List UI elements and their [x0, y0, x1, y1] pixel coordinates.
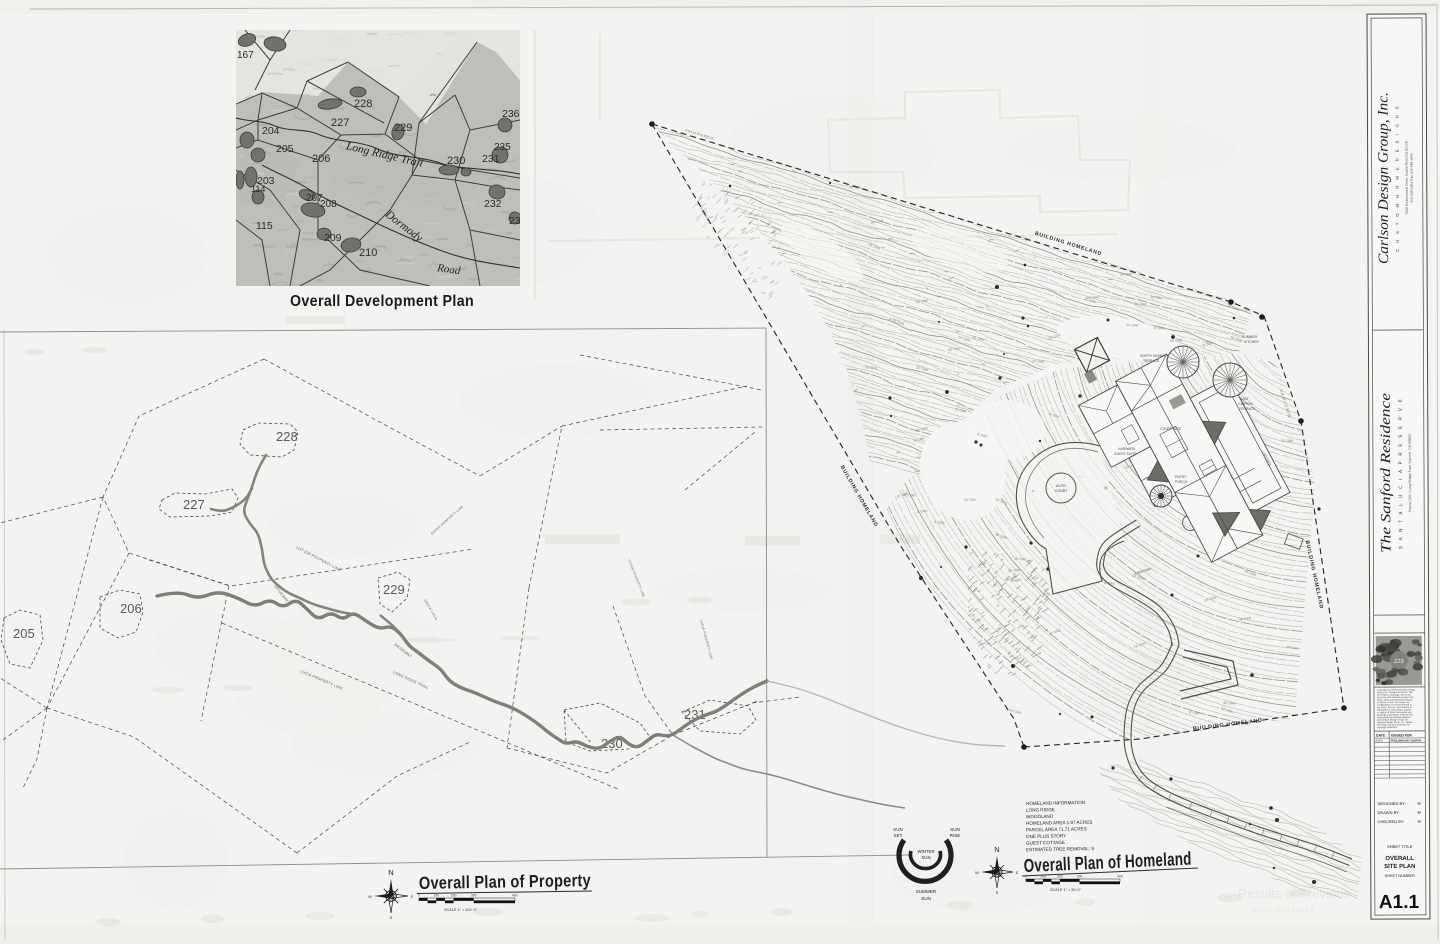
svg-text:228: 228: [276, 429, 298, 444]
svg-text:SUN: SUN: [921, 896, 931, 901]
svg-text:208: 208: [320, 199, 337, 210]
svg-text:303-448-1854 Fax 303-448-1840: 303-448-1854 Fax 303-448-1840: [1410, 153, 1414, 203]
svg-text:TERRACE: TERRACE: [1239, 407, 1256, 411]
svg-text:167: 167: [237, 50, 254, 61]
svg-text:229: 229: [1394, 659, 1405, 665]
svg-text:227: 227: [183, 497, 205, 512]
svg-text:205: 205: [276, 143, 294, 155]
svg-text:WINTER: WINTER: [917, 849, 934, 854]
svg-text:36' OAK: 36' OAK: [1223, 701, 1236, 706]
svg-text:206: 206: [120, 601, 142, 616]
svg-text:E: E: [1016, 870, 1019, 875]
svg-text:OVERALL: OVERALL: [1385, 856, 1414, 862]
svg-text:CANYON: CANYON: [1238, 402, 1253, 406]
svg-text:210: 210: [359, 247, 377, 259]
svg-text:Carlson Design Group, Inc.: Carlson Design Group, Inc.: [1375, 92, 1392, 264]
svg-text:236: 236: [502, 108, 520, 120]
svg-text:Parcel 229 / Long Ridge Trail,: Parcel 229 / Long Ridge Trail, Carmel, C…: [1408, 434, 1412, 512]
svg-text:SCALE 1" = 30'-0": SCALE 1" = 30'-0": [1050, 888, 1082, 892]
svg-text:RISE: RISE: [950, 833, 961, 838]
svg-text:E: E: [411, 894, 414, 899]
svg-text:The Sanford Residence: The Sanford Residence: [1379, 393, 1395, 553]
svg-text:7562 Hickorywood Drive, Castle: 7562 Hickorywood Drive, Castle Rock CO 8…: [1405, 141, 1409, 214]
svg-text:23: 23: [509, 215, 521, 227]
svg-text:Results of Previous: Results of Previous: [1238, 886, 1350, 901]
svg-text:S: S: [996, 890, 999, 895]
svg-text:200: 200: [1057, 875, 1063, 879]
svg-text:PRELIMINARY DESIGN: PRELIMINARY DESIGN: [1391, 738, 1422, 742]
svg-text:8' OAK: 8' OAK: [1154, 326, 1166, 331]
svg-text:100: 100: [1040, 875, 1046, 879]
svg-text:SITE PLAN: SITE PLAN: [1384, 864, 1415, 870]
svg-text:WOODLAND: WOODLAND: [1026, 814, 1054, 819]
svg-text:KITCHEN: KITCHEN: [1244, 340, 1259, 344]
svg-text:231: 231: [482, 153, 500, 165]
svg-text:114: 114: [251, 184, 265, 194]
svg-text:S: S: [390, 915, 393, 920]
svg-text:36' OAK: 36' OAK: [1170, 338, 1183, 343]
svg-text:SET: SET: [894, 833, 903, 838]
svg-text:24' OAK: 24' OAK: [964, 498, 977, 502]
svg-text:36' OAK: 36' OAK: [1134, 302, 1147, 306]
svg-text:A1.1: A1.1: [1379, 892, 1420, 913]
svg-text:COURT: COURT: [1055, 489, 1069, 493]
svg-text:229: 229: [394, 122, 412, 134]
svg-text:GUEST COTTAGE: GUEST COTTAGE: [1026, 840, 1065, 846]
svg-text:AUTO: AUTO: [1056, 484, 1066, 488]
svg-text:300: 300: [471, 894, 477, 898]
svg-text:SHEET NUMBER: SHEET NUMBER: [1385, 874, 1415, 878]
svg-text:LONG RIDGE: LONG RIDGE: [1026, 807, 1055, 813]
svg-text:230: 230: [447, 155, 465, 167]
svg-text:PORCH: PORCH: [1175, 480, 1188, 484]
svg-text:Overall Plan of Property: Overall Plan of Property: [419, 870, 591, 893]
svg-text:W: W: [368, 894, 372, 899]
svg-text:W: W: [975, 870, 979, 875]
svg-text:ENTRY: ENTRY: [1175, 475, 1187, 479]
svg-text:0: 0: [1025, 875, 1027, 879]
svg-text:205: 205: [13, 626, 35, 641]
svg-text:400: 400: [512, 894, 518, 898]
svg-text:209: 209: [324, 232, 342, 244]
svg-text:12' OAK: 12' OAK: [1281, 439, 1294, 443]
svg-text:200: 200: [451, 894, 457, 898]
svg-text:SHEET TITLE: SHEET TITLE: [1387, 844, 1413, 849]
svg-text:copyright protection.: copyright protection.: [1377, 726, 1398, 729]
svg-text:C U S T O M H O M E D E S I: C U S T O M H O M E D E S I G N S: [1394, 104, 1400, 252]
svg-text:M: M: [1417, 810, 1420, 815]
svg-text:NORTH DINING: NORTH DINING: [1140, 354, 1165, 358]
svg-text:N: N: [994, 845, 999, 854]
svg-text:206: 206: [312, 153, 330, 165]
svg-text:204: 204: [262, 125, 280, 137]
svg-text:N: N: [388, 868, 393, 877]
svg-text:M: M: [1417, 801, 1420, 806]
svg-text:15' OAK: 15' OAK: [1005, 578, 1018, 583]
svg-text:24' OAK: 24' OAK: [1126, 323, 1139, 328]
svg-text:COURTYARD: COURTYARD: [1160, 427, 1182, 431]
svg-text:400: 400: [1117, 875, 1123, 879]
svg-text:GUEST SUITE: GUEST SUITE: [1114, 452, 1137, 456]
svg-text:HARWARD: HARWARD: [1118, 447, 1136, 451]
svg-text:100: 100: [433, 894, 439, 898]
svg-text:HOMELAND INFORMATION: HOMELAND INFORMATION: [1026, 800, 1085, 806]
svg-text:TERRACE: TERRACE: [1143, 359, 1160, 363]
svg-text:235: 235: [494, 142, 511, 153]
svg-text:SUMMER: SUMMER: [1242, 335, 1258, 339]
svg-text:SCALE 1" = 200'-0": SCALE 1" = 200'-0": [444, 908, 478, 912]
svg-text:15' OAK: 15' OAK: [1014, 557, 1027, 561]
svg-text:M: M: [1418, 819, 1421, 824]
svg-text:ISSUED FOR: ISSUED FOR: [1391, 733, 1412, 737]
svg-text:SUN: SUN: [893, 827, 903, 832]
svg-text:232: 232: [484, 198, 502, 210]
svg-text:229: 229: [383, 582, 405, 597]
svg-text:CHECKED BY:: CHECKED BY:: [1378, 819, 1405, 824]
svg-text:S A N T A L U C I A P R E S: S A N T A L U C I A P R E S E R V E: [1398, 397, 1405, 549]
svg-text:DESIGNED BY:: DESIGNED BY:: [1377, 801, 1405, 806]
svg-text:227: 227: [331, 117, 349, 129]
svg-text:06/03: 06/03: [1376, 739, 1383, 743]
svg-text:ONE PLUS STORY: ONE PLUS STORY: [1026, 833, 1066, 839]
svg-text:300: 300: [1077, 875, 1083, 879]
svg-text:SUMMER: SUMMER: [916, 889, 937, 894]
svg-text:ghost print marks: ghost print marks: [1252, 905, 1313, 914]
svg-text:SUN: SUN: [921, 855, 930, 860]
svg-text:DRAWN BY:: DRAWN BY:: [1377, 810, 1399, 815]
svg-text:PARCEL AREA 71.71 ACRES: PARCEL AREA 71.71 ACRES: [1026, 826, 1087, 832]
svg-text:228: 228: [354, 98, 372, 110]
svg-text:36' OAK: 36' OAK: [849, 185, 862, 190]
svg-text:EAST: EAST: [1240, 397, 1249, 401]
svg-text:DATE: DATE: [1376, 734, 1386, 738]
svg-text:115: 115: [256, 220, 273, 232]
svg-text:Overall Development Plan: Overall Development Plan: [290, 293, 474, 310]
svg-text:SUN: SUN: [950, 827, 960, 832]
svg-text:0: 0: [418, 894, 420, 898]
